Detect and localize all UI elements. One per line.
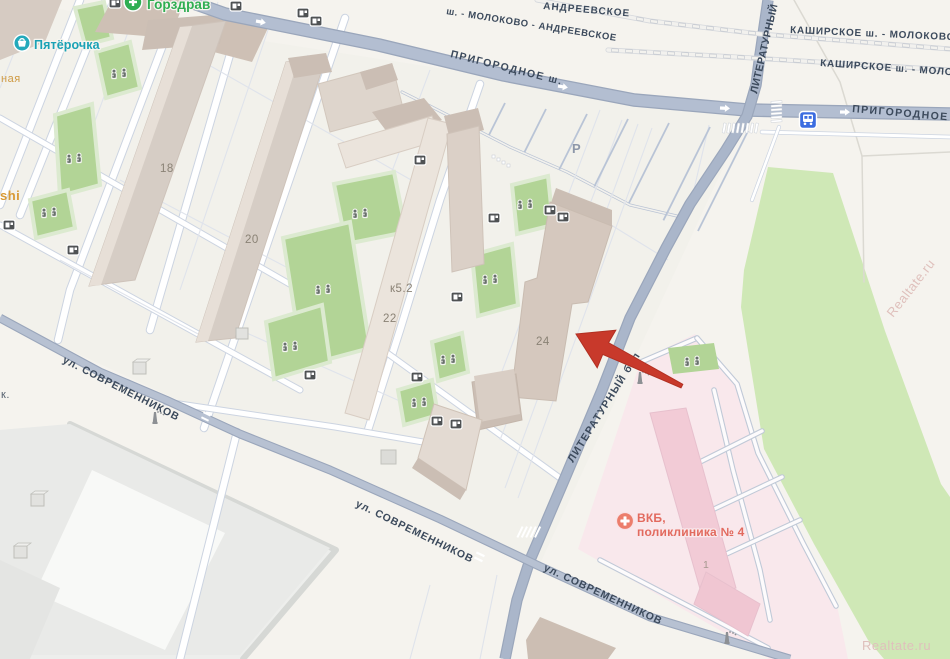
svg-text:22: 22 [383, 313, 397, 325]
svg-text:shi: shi [0, 188, 20, 203]
svg-text:Р: Р [572, 141, 581, 156]
svg-text:поликлиника № 4: поликлиника № 4 [637, 525, 745, 539]
svg-text:к5.2: к5.2 [390, 283, 413, 295]
svg-text:18: 18 [160, 163, 174, 175]
svg-text:20: 20 [245, 234, 259, 246]
svg-text:Realtate.ru: Realtate.ru [862, 638, 931, 653]
svg-text:24: 24 [536, 336, 550, 348]
svg-text:ная: ная [1, 73, 21, 85]
svg-text:к.: к. [1, 389, 10, 401]
svg-text:Горздрав: Горздрав [147, 0, 210, 12]
svg-text:ВКБ,: ВКБ, [637, 511, 666, 525]
svg-text:1: 1 [703, 559, 709, 571]
svg-text:Пятёрочка: Пятёрочка [34, 38, 101, 52]
